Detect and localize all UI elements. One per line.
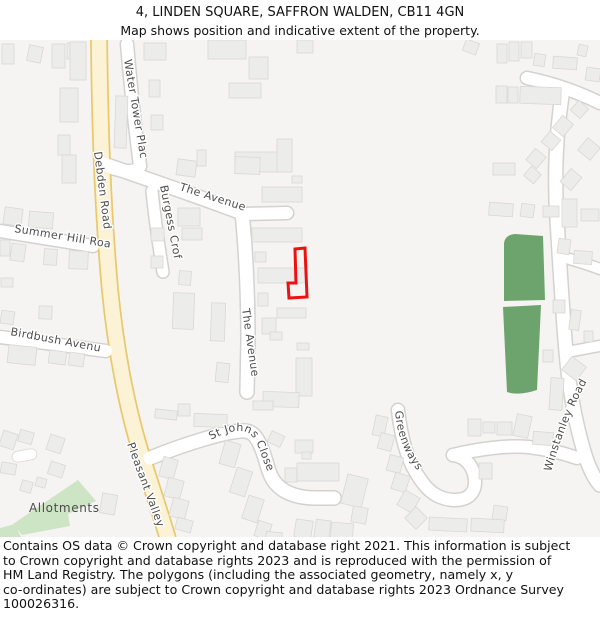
building	[314, 519, 331, 537]
building	[553, 56, 578, 70]
building	[197, 150, 206, 166]
copyright-line: Contains OS data © Crown copyright and d…	[0, 539, 600, 554]
building	[258, 293, 268, 306]
building	[151, 256, 163, 268]
building	[533, 53, 546, 66]
page-subtitle: Map shows position and indicative extent…	[0, 23, 600, 38]
building	[178, 208, 200, 226]
building	[155, 409, 178, 420]
building	[215, 362, 230, 382]
building	[549, 378, 564, 411]
building	[252, 228, 302, 242]
copyright-line: to Crown copyright and database rights 2…	[0, 554, 600, 569]
woodland-north	[504, 234, 545, 301]
copyright-footer: Contains OS data © Crown copyright and d…	[0, 539, 600, 625]
building	[509, 42, 519, 61]
copyright-line: 100026316.	[0, 597, 600, 612]
building	[331, 522, 354, 537]
building	[0, 310, 15, 325]
building	[297, 40, 313, 53]
building	[497, 44, 507, 63]
building	[584, 331, 593, 342]
building	[255, 252, 266, 262]
building	[297, 463, 339, 481]
map-title-header: 4, LINDEN SQUARE, SAFFRON WALDEN, CB11 4…	[0, 0, 600, 40]
building	[497, 422, 512, 435]
building	[543, 350, 553, 362]
building	[208, 40, 246, 59]
building	[149, 80, 160, 97]
building	[99, 493, 117, 515]
building	[302, 452, 311, 459]
building	[496, 86, 507, 103]
building	[520, 86, 562, 104]
building	[520, 203, 535, 218]
building	[178, 404, 190, 416]
copyright-line: HM Land Registry. The polygons (includin…	[0, 568, 600, 583]
page-title: 4, LINDEN SQUARE, SAFFRON WALDEN, CB11 4…	[0, 0, 600, 20]
building	[26, 45, 43, 64]
building	[557, 238, 571, 255]
building	[270, 332, 282, 340]
map-canvas: Water Tower Place Debden Road Burgess Cr…	[0, 40, 600, 537]
building	[48, 350, 67, 365]
copyright-line: co-ordinates) are subject to Crown copyr…	[0, 583, 600, 598]
building	[60, 88, 78, 122]
building	[508, 87, 518, 103]
building	[562, 199, 577, 227]
building	[62, 155, 76, 183]
property-map-page: 4, LINDEN SQUARE, SAFFRON WALDEN, CB11 4…	[0, 0, 600, 625]
building	[262, 187, 302, 202]
building	[0, 462, 17, 475]
building	[296, 358, 312, 396]
building	[0, 240, 10, 256]
building	[35, 477, 47, 488]
building	[172, 293, 194, 330]
building	[176, 159, 197, 177]
building	[577, 44, 588, 57]
building	[144, 43, 166, 60]
building	[20, 480, 33, 493]
building	[235, 157, 261, 175]
building	[52, 44, 65, 68]
area-label-allotments: Allotments	[29, 501, 100, 515]
building	[479, 463, 492, 479]
building	[1, 278, 13, 287]
building	[493, 163, 515, 175]
building	[2, 44, 14, 64]
building	[277, 139, 292, 172]
building	[277, 308, 306, 318]
building	[585, 67, 600, 82]
building	[521, 42, 532, 58]
building	[471, 518, 505, 533]
building	[151, 115, 163, 130]
building	[10, 243, 26, 262]
building	[266, 531, 283, 537]
building	[210, 303, 225, 341]
building	[553, 300, 565, 313]
building	[292, 176, 302, 183]
building	[43, 249, 57, 266]
building	[492, 505, 508, 521]
building	[543, 206, 559, 217]
building	[69, 251, 89, 270]
building	[483, 422, 495, 433]
building	[351, 506, 369, 524]
building	[253, 401, 273, 410]
building	[429, 517, 468, 532]
building	[70, 42, 86, 80]
building	[295, 440, 313, 453]
building	[574, 250, 593, 264]
map-area: Water Tower Place Debden Road Burgess Cr…	[0, 40, 600, 537]
building	[229, 83, 261, 98]
building	[294, 519, 313, 537]
building	[114, 96, 128, 148]
building	[489, 202, 514, 217]
building	[179, 271, 192, 286]
building	[151, 228, 164, 241]
building	[297, 343, 309, 350]
building	[7, 345, 37, 366]
building	[58, 135, 70, 155]
building	[249, 57, 268, 79]
building	[468, 419, 481, 436]
building	[39, 306, 52, 319]
building	[182, 228, 202, 240]
building	[285, 468, 297, 482]
building	[258, 268, 294, 283]
building	[68, 352, 85, 367]
building	[581, 209, 599, 221]
woodland-south	[503, 305, 541, 394]
